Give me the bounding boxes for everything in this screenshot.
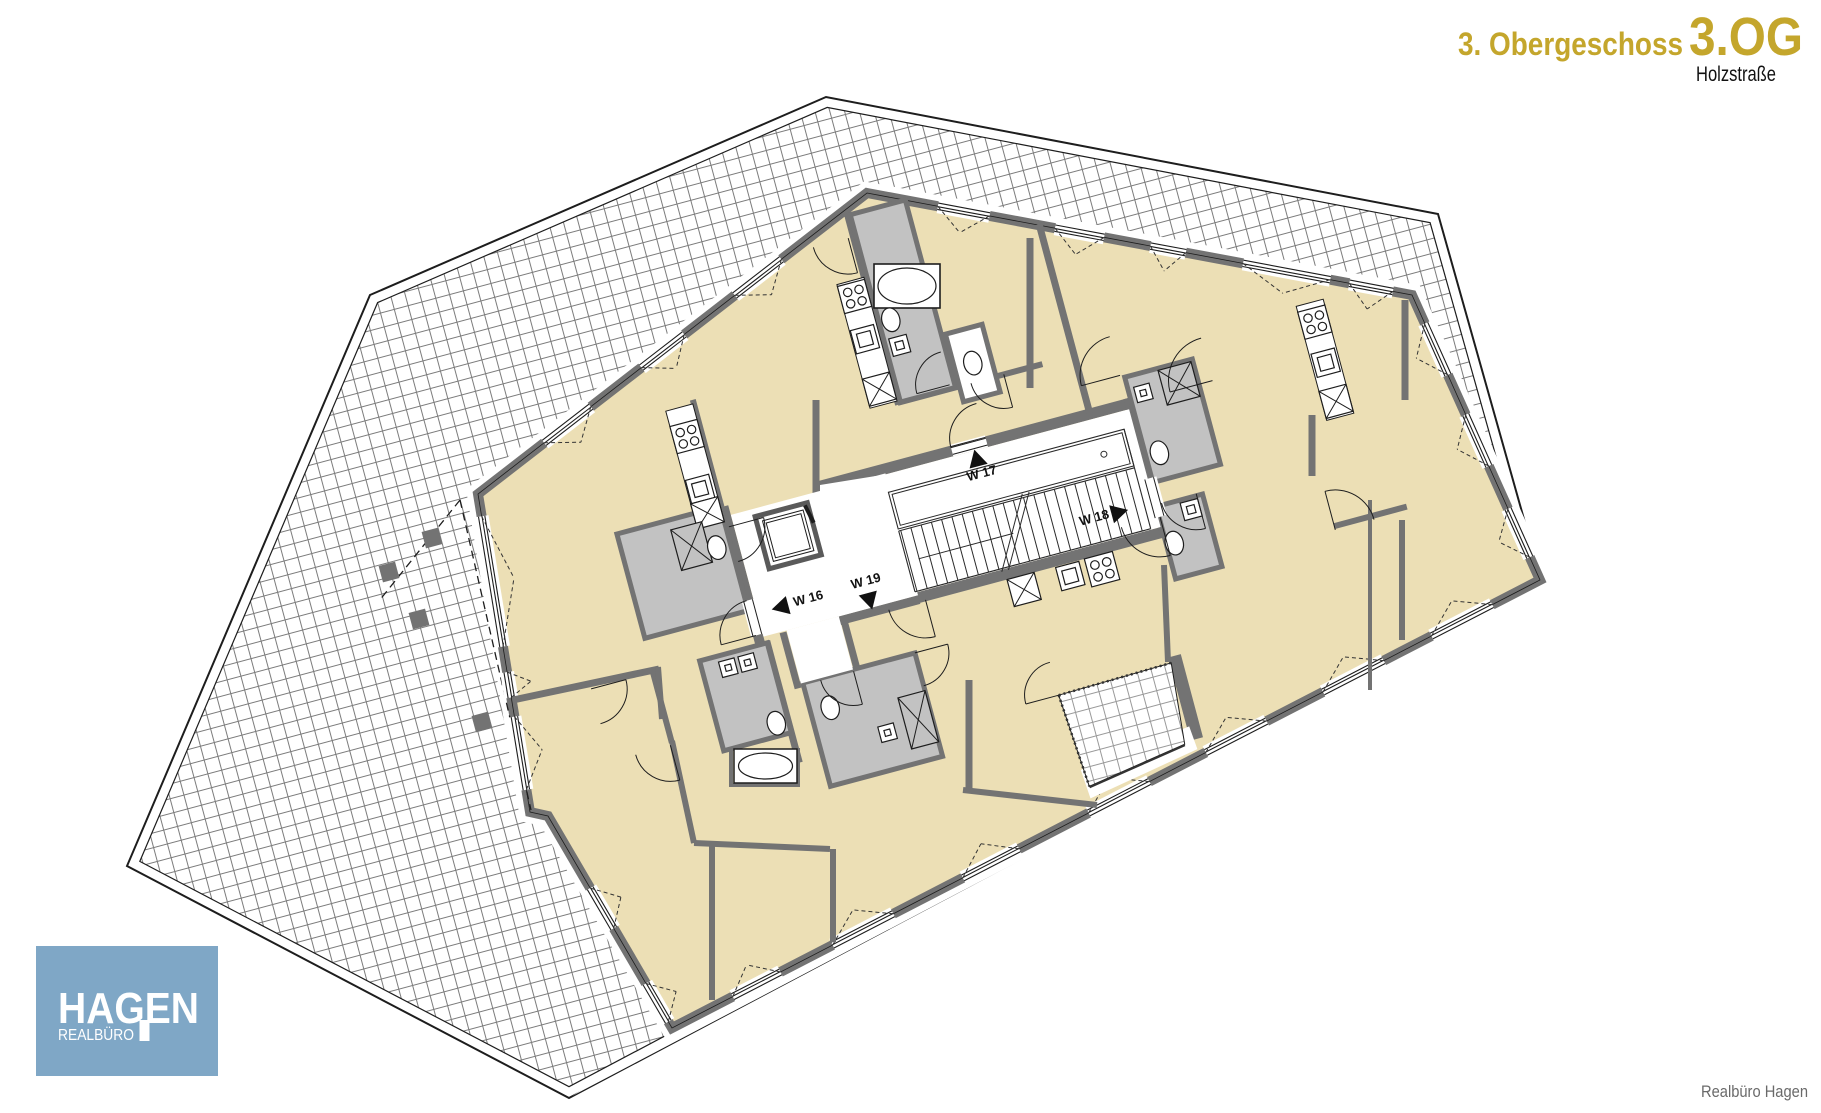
svg-text:HAGEN: HAGEN (58, 984, 199, 1033)
svg-text:Realbüro Hagen: Realbüro Hagen (1701, 1082, 1808, 1101)
svg-text:Holzstraße: Holzstraße (1696, 63, 1776, 86)
svg-text:3.OG: 3.OG (1689, 7, 1803, 67)
svg-text:REALBÜRO: REALBÜRO (58, 1026, 134, 1044)
svg-text:3. Obergeschoss: 3. Obergeschoss (1458, 26, 1683, 62)
